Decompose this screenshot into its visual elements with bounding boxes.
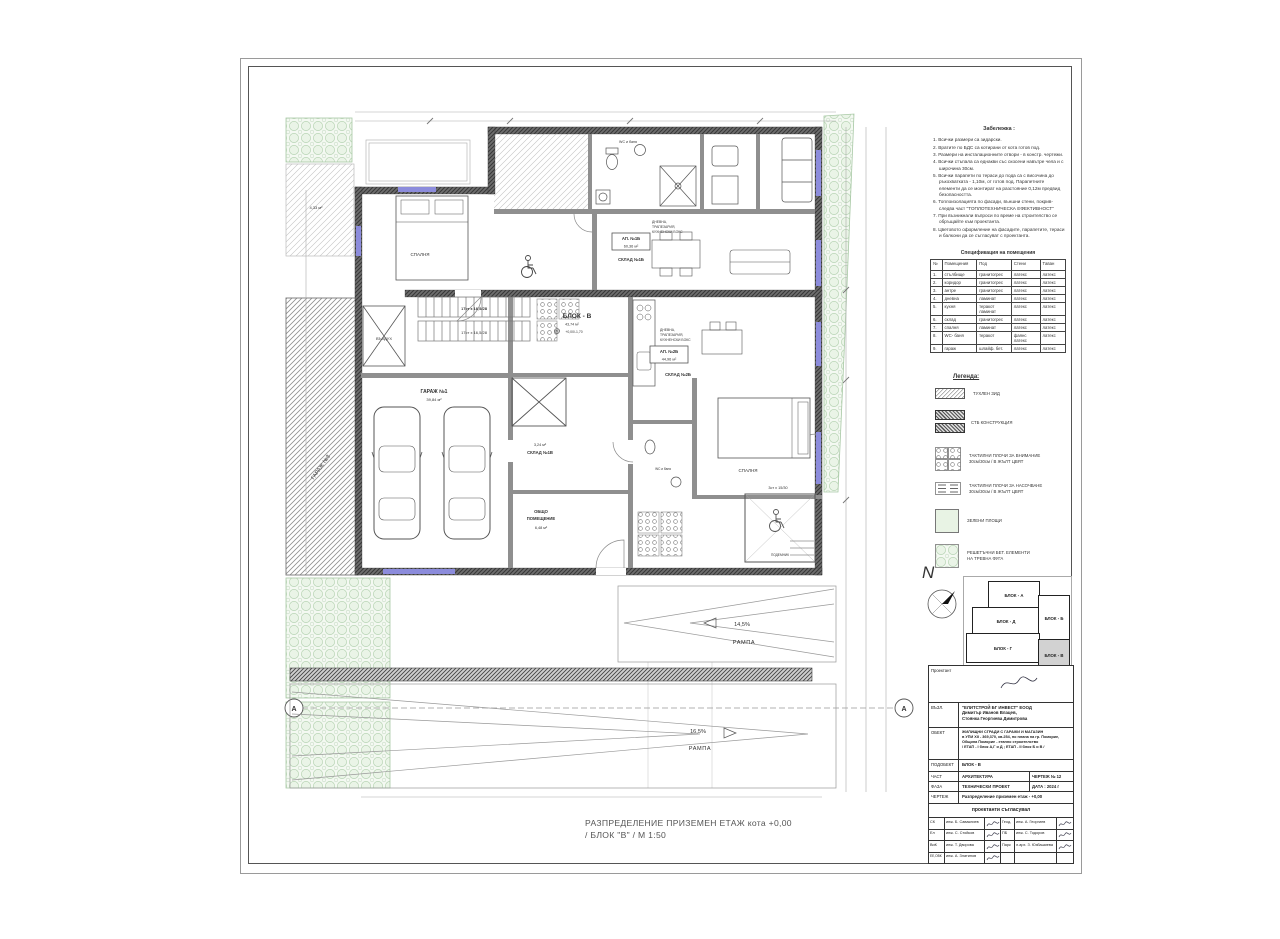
client-row: ВЪЗЛ. "ЕЛИТСТРОЙ БГ ИНВЕСТ" ЕООД Димитър… [929,702,1073,727]
designer-label: Проектант [929,666,959,702]
spec-header: Под [977,260,1012,271]
phase-row: ФАЗА ТЕХНИЧЕСКИ ПРОЕКТ ДАТА : 2024 г [929,781,1073,791]
notes-title: Забележка : [933,126,1065,133]
legend-item: ТАКТИЛНИ ПЛОЧИ ЗА НАСОЧВАНЕ 30см/30см / … [935,482,1069,495]
blok-v-level: +0,00/-1,70 [565,330,582,334]
object-row: ОБЕКТ ЖИЛИЩНИ СГРАДИ С ГАРАЖИ И МАГАЗИН … [929,727,1073,759]
signature-cell [1057,840,1073,852]
spec-title: Спецификация на помещения [930,250,1066,256]
garage1-name: ГАРАЖ №1 [421,389,448,395]
tactile-guiding-swatch [935,482,961,495]
signature-cell [985,840,1001,852]
note-item: 6. Топлоизолацията по фасади, външни сте… [933,199,1065,212]
key-plan-block-d: БЛОК - Д [972,607,1040,635]
axis-a-left-label: А [291,706,296,713]
ramp-lower-label: РАМПА [689,746,712,752]
key-plan-block-b: БЛОК - Б [1038,595,1070,641]
spec-row: 7.спалняламинатлатекслатекс [931,324,1066,332]
phase-value: ТЕХНИЧЕСКИ ПРОЕКТ [959,782,1029,791]
signature-cell [985,829,1001,841]
drawing-label: ЧЕРТЕЖ [929,792,959,803]
signer-row: ЕЕ,ОВК инж. А. Златинов [929,852,1073,864]
ap2b-area: 44,96 м² [662,358,677,362]
wc-top-label: WC и баня [619,140,637,144]
note-item: 8. Цветовото оформление на фасадите, пар… [933,227,1065,240]
sklad2b-label: СКЛАД №2Б [665,372,691,377]
axis-a-right-label: А [901,706,906,713]
note-item: 5. Всички парапети по тераси до пода са … [933,173,1065,198]
obshto-l1: ОБЩО [534,509,549,514]
signer-row: СК инж. Б. Саваклиев Геод. инж. А. Георг… [929,817,1073,829]
terrace-railing [366,140,470,184]
spec-row: 3.антрегранитогреслатекслатекс [931,287,1066,295]
spec-row: 8.WC- банятеракотфаянс латекслатекс [931,332,1066,345]
obshto-l2: ПОМЕЩЕНИЕ [527,516,556,521]
spec-header: Таван [1040,260,1065,271]
ramp-upper-slope: 14,5% [734,622,750,628]
drawing-title-line1: РАЗПРЕДЕЛЕНИЕ ПРИЗЕМЕН ЕТАЖ кота +0,00 [585,817,792,829]
legend-item: ЗЕЛЕНИ ПЛОЩИ [935,509,1069,533]
ap2b-name: АП. №2Б [660,349,678,354]
green-area-swatch [935,509,959,533]
ap2b-bed [718,398,810,458]
signature-cell [1057,852,1073,864]
bedroom1: СПАЛНЯ [396,196,468,280]
bedroom2-label: СПАЛНЯ [738,468,757,473]
part-value: АРХИТЕКТУРА [959,772,1029,781]
spec-header: Помещения [942,260,977,271]
spec-row: 4.дневналаминатлатекслатекс [931,295,1066,303]
note-item: 4. Всички стъпала са еднакви със скосени… [933,159,1065,172]
spec-table: № Помещения Под Стени Таван 1.стълбищегр… [930,259,1066,353]
note-item: 3. Размери на инсталационните отвори - в… [933,152,1065,158]
ramp-upper-label: РАМПА [733,640,756,646]
spec-row: 5.кухнятеракот ламинатлатекслатекс [931,303,1066,316]
obshto-area: 6,48 м² [535,526,548,530]
drawing-title: РАЗПРЕДЕЛЕНИЕ ПРИЗЕМЕН ЕТАЖ кота +0,00 /… [585,817,792,842]
sign-header: проектанти съгласувал [929,804,1073,817]
legend-title: Легенда: [953,374,1069,380]
hatched-zone-ap1b-bath [494,134,588,209]
sheet-number: ЧЕРТЕЖ № 12 [1029,772,1073,781]
key-plan-block-g: БЛОК - Г [966,633,1040,663]
key-plan: БЛОК - А БЛОК - Д БЛОК - Б БЛОК - Г БЛОК… [963,576,1072,674]
spec-header: № [931,260,943,271]
ap2b-living-l3: КУХНЕНСКИ БОКС [660,338,691,342]
steps3-label: 3ст х 15/30 [768,486,787,490]
spec-row: 1.стълбищегранитогреслатекслатекс [931,271,1066,279]
signer-row: ВиК инж. Т. Дворова Парк л.арх. З. Юзбаш… [929,840,1073,852]
north-arrow: N [918,562,966,628]
signature-cell [1057,817,1073,829]
note-item: 1. Всички размери са зидарски. [933,137,1065,143]
spec-row: 9.гаражшлайф. бет.латекслатекс [931,345,1066,353]
spec-row: 2.коридоргранитогреслатекслатекс [931,279,1066,287]
phase-label: ФАЗА [929,782,959,791]
bedroom1-label: СПАЛНЯ [410,252,429,257]
note-item: 2. Вратите по БДС са котирани от кота го… [933,145,1065,151]
signer-row: Ел инж. С. Стойков ПБ инж. С. Тодоров [929,829,1073,841]
subobject-label: ПОДОБЕКТ [929,760,959,771]
subobject-value: БЛОК - В [959,760,1073,771]
signature-cell [985,817,1001,829]
title-block-designer-row: Проектант [929,666,1073,702]
ramp-upper: 14,5% РАМПА [618,586,836,662]
drawing-title-line2: / БЛОК "В" / М 1:50 [585,829,792,841]
blok-v-area: 43,74 м² [565,323,579,327]
object-label: ОБЕКТ [929,728,959,759]
stairs-flight2-text: 17ст х 16,5/28 [461,330,488,335]
signature-cell [1057,829,1073,841]
terrace-area-label: 4,33 м² [310,205,324,210]
stairs-flight1-text: 17ст х 16,5/28 [461,306,488,311]
spec-row: 6.складгранитогреслатекслатекс [931,316,1066,324]
legend-item: ТУХЛЕН ЗИД [935,388,1069,399]
title-block: Проектант ВЪЗЛ. "ЕЛИТСТРОЙ БГ ИНВЕСТ" ЕО… [928,665,1074,864]
note-item: 7. При възникнали въпроси по време на ст… [933,213,1065,226]
garage1-area: 39,84 м² [426,397,442,402]
client-label: ВЪЗЛ. [929,703,959,727]
retaining-wall-band [290,668,812,681]
signature-cell [985,852,1001,864]
ap2b-living-l1: ДНЕВНА, [660,328,675,332]
signers-grid: СК инж. Б. Саваклиев Геод. инж. А. Георг… [929,817,1073,863]
subobject-row: ПОДОБЕКТ БЛОК - В [929,759,1073,771]
floor-plan-canvas: 4,33 м² ГАРАЖ №3 А А 14,5% РАМПА [0,0,1280,939]
podemnik-label: ПОДЕМНИК [771,553,789,557]
client-value: "ЕЛИТСТРОЙ БГ ИНВЕСТ" ЕООД Димитър Ивано… [959,703,1073,727]
tactile-attention-swatch [935,447,961,471]
sklad1b-label: СКЛАД №1Б [618,257,644,262]
ap1b-name: АП. №1Б [622,236,640,241]
spec-block: Спецификация на помещения № Помещения По… [930,250,1066,353]
sklad1v-area: 3,24 м² [534,443,547,447]
legend-item: СТБ КОНСТРУКЦИЯ [935,410,1069,436]
object-value: ЖИЛИЩНИ СГРАДИ С ГАРАЖИ И МАГАЗИН в УПИ … [959,728,1073,759]
spec-header: Стени [1011,260,1040,271]
ap1b-area: 60,36 м² [624,245,639,249]
ramp-lower-slope: 16,5% [690,729,706,735]
car-2 [442,407,492,539]
void-label: ВЪЗДУХ [376,336,392,341]
date-value: ДАТА : 2024 г [1029,782,1073,791]
part-row: ЧАСТ АРХИТЕКТУРА ЧЕРТЕЖ № 12 [929,771,1073,781]
car-1 [372,407,422,539]
sign-header-row: проектанти съгласувал [929,803,1073,817]
ap1b-living-l1: ДНЕВНА, [652,220,667,224]
sklad1v-name: СКЛАД №1В [527,450,553,455]
architectural-drawing-page: { "colors": {"wall_dark": "#5a5a5a", "wi… [0,0,1280,939]
brick-wall-swatch [935,388,965,399]
legend-item: ТАКТИЛНИ ПЛОЧИ ЗА ВНИМАНИЕ 30см/30см / В… [935,447,1069,471]
drawing-row: ЧЕРТЕЖ Разпределение приземен етаж - +0,… [929,791,1073,803]
part-label: ЧАСТ [929,772,959,781]
ap1b-living-l2: ТРАПЕЗАРИЯ, [652,225,675,229]
north-label: N [922,563,935,582]
ap2b-kitchen [633,300,655,386]
notes-block: Забележка : 1. Всички размери са зидарск… [933,126,1065,240]
signature-scribble [999,674,1039,694]
key-plan-block-a: БЛОК - А [988,581,1040,609]
legend-block: Легенда: ТУХЛЕН ЗИД СТБ КОНСТРУКЦИЯ ТАКТ… [935,374,1069,579]
concrete-swatch [935,410,963,436]
drawing-value: Разпределение приземен етаж - +0,00 [959,792,1073,803]
ap2b-living-l2: ТРАПЕЗАРИЯ, [660,333,683,337]
wc2-label: WC и баня [655,467,671,471]
blok-v-name: БЛОК - В [563,313,592,320]
